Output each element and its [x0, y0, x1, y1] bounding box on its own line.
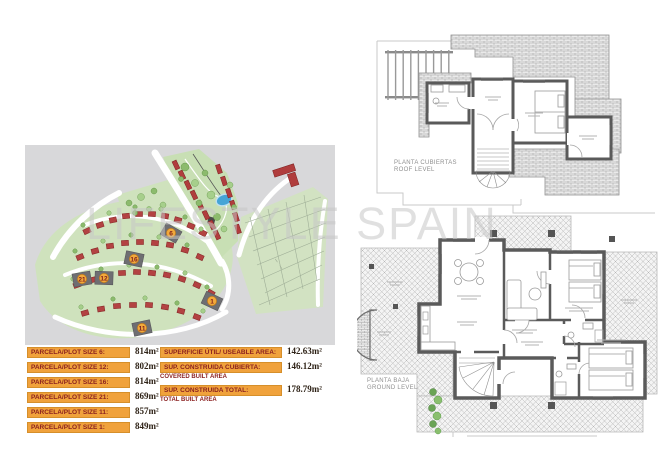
- table-row: PARCELA/PLOT SIZE 6: 814m²: [27, 347, 159, 358]
- ground-plan-caption-en: GROUND LEVEL: [367, 385, 418, 392]
- summary-value: 142.63m²: [287, 347, 322, 356]
- area-summary-table: SUPERFICIE ÚTIL/ USEABLE AREA: 142.63m² …: [160, 347, 322, 408]
- plot-marker-12: 12: [99, 273, 108, 282]
- table-row: PARCELA/PLOT SIZE 11: 857m²: [27, 407, 159, 418]
- plot-marker-16-label: 16: [130, 256, 138, 263]
- plot-value: 849m²: [135, 422, 159, 431]
- plot-marker-21-label: 21: [78, 276, 86, 283]
- ground-plan-caption: PLANTA BAJA GROUND LEVEL: [367, 378, 418, 392]
- plot-value: 857m²: [135, 407, 159, 416]
- table-row: SUP. CONSTRUIDA CUBIERTA: COVERED BUILT …: [160, 362, 322, 381]
- plot-label: PARCELA/PLOT SIZE 1:: [27, 422, 130, 433]
- plot-label: PARCELA/PLOT SIZE 12:: [27, 362, 130, 373]
- summary-value: 178.79m²: [287, 385, 322, 394]
- plot-label: PARCELA/PLOT SIZE 11:: [27, 407, 130, 418]
- table-row: SUP. CONSTRUIDA TOTAL: TOTAL BUILT AREA …: [160, 385, 322, 404]
- plot-label: PARCELA/PLOT SIZE 6:: [27, 347, 130, 358]
- table-row: PARCELA/PLOT SIZE 21: 869m²: [27, 392, 159, 403]
- table-row: SUPERFICIE ÚTIL/ USEABLE AREA: 142.63m²: [160, 347, 322, 358]
- table-row: PARCELA/PLOT SIZE 1: 849m²: [27, 422, 159, 433]
- plot-marker-1: 1: [207, 296, 216, 305]
- summary-label: SUP. CONSTRUIDA TOTAL:: [160, 385, 282, 396]
- plot-marker-11: 11: [137, 323, 146, 332]
- plot-marker-21: 21: [77, 274, 86, 283]
- roof-plan-caption-en: ROOF LEVEL: [394, 167, 457, 174]
- roof-bed: [535, 91, 565, 133]
- summary-sublabel: COVERED BUILT AREA: [160, 374, 282, 381]
- plot-value: 802m²: [135, 362, 159, 371]
- ground-floor-plan: [357, 212, 660, 438]
- plot-marker-16: 16: [129, 254, 138, 263]
- plot-marker-12-label: 12: [100, 275, 108, 282]
- plot-marker-6-label: 6: [169, 230, 173, 237]
- plot-marker-11-label: 11: [139, 325, 146, 332]
- summary-value: 146.12m²: [287, 362, 322, 371]
- table-row: PARCELA/PLOT SIZE 16: 814m²: [27, 377, 159, 388]
- plot-value: 869m²: [135, 392, 159, 401]
- summary-label: SUPERFICIE ÚTIL/ USEABLE AREA:: [160, 347, 282, 358]
- plot-label: PARCELA/PLOT SIZE 21:: [27, 392, 130, 403]
- summary-sublabel: TOTAL BUILT AREA: [160, 397, 282, 404]
- roof-plan-caption-es: PLANTA CUBIERTAS: [394, 160, 457, 167]
- roof-plan-caption: PLANTA CUBIERTAS ROOF LEVEL: [394, 160, 457, 174]
- plot-marker-1-label: 1: [210, 298, 214, 305]
- plot-value: 814m²: [135, 347, 159, 356]
- plot-value: 814m²: [135, 377, 159, 386]
- plot-size-table: PARCELA/PLOT SIZE 6: 814m² PARCELA/PLOT …: [27, 347, 159, 437]
- summary-label: SUP. CONSTRUIDA CUBIERTA:: [160, 362, 282, 373]
- terrace-step-outline: [453, 432, 597, 437]
- ground-plan-caption-es: PLANTA BAJA: [367, 378, 418, 385]
- plot-label: PARCELA/PLOT SIZE 16:: [27, 377, 130, 388]
- plot-marker-6: 6: [166, 228, 175, 237]
- site-plan: 6 16 12 21 11 1: [25, 145, 335, 345]
- brochure-page: 6 16 12 21 11 1: [0, 0, 660, 467]
- table-row: PARCELA/PLOT SIZE 12: 802m²: [27, 362, 159, 373]
- roof-floor-plan: [363, 21, 655, 217]
